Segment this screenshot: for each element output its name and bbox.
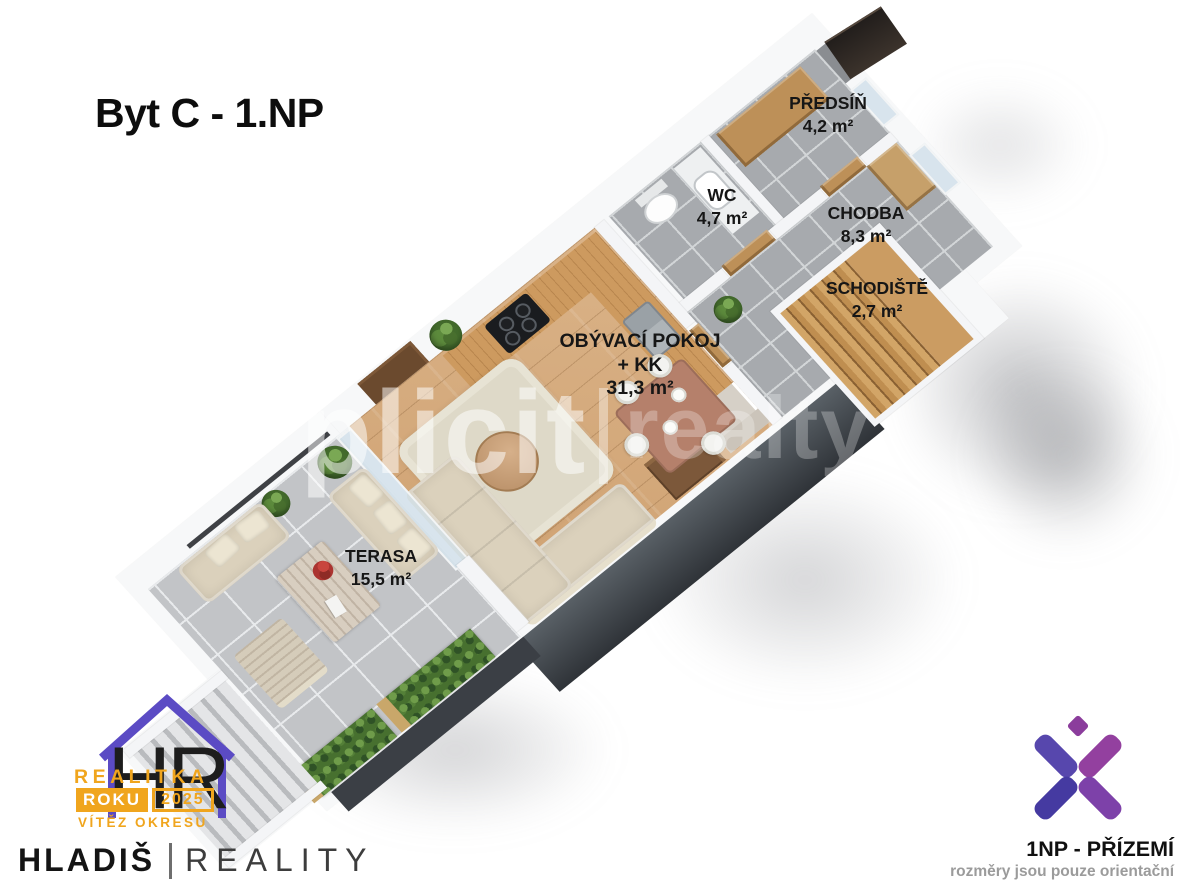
label-chodba: CHODBA 8,3 m² [828,202,905,248]
label-schodiste: SCHODIŠTĚ 2,7 m² [826,277,928,323]
agency-name-secondary: REALITY [185,842,374,879]
floor-disclaimer: rozměry jsou pouze orientační [950,863,1174,881]
room-name: SCHODIŠTĚ [826,277,928,300]
label-wc: WC 4,7 m² [697,184,748,230]
award-year: 2025 [152,788,214,812]
room-area: 2,7 m² [826,300,928,323]
agency-name-divider [169,843,172,879]
award-word: ROKU [76,788,148,812]
xlogo-icon [1020,712,1136,836]
room-area: 4,7 m² [697,207,748,230]
book [325,595,347,618]
label-terasa: TERASA 15,5 m² [345,545,417,591]
room-name-line2: + KK [559,354,720,378]
xlogo-bar-se [1075,773,1124,822]
award-row: ROKU 2025 [76,788,214,812]
room-name: CHODBA [828,202,905,225]
label-predsin: PŘEDSÍŇ 4,2 m² [789,92,867,138]
room-name: TERASA [345,545,417,568]
label-obyvaci-pokoj: OBÝVACÍ POKOJ + KK 31,3 m² [559,330,720,401]
floor-label: 1NP - PŘÍZEMÍ [1026,837,1174,862]
room-name: WC [697,184,748,207]
room-area: 15,5 m² [345,568,417,591]
room-area: 4,2 m² [789,115,867,138]
room-name: OBÝVACÍ POKOJ [559,330,720,354]
xlogo-bar-sw [1031,773,1080,822]
agency-name-primary: HLADIŠ [18,842,155,879]
award-line3: VÍTĚZ OKRESU [78,815,208,830]
agency-name: HLADIŠ REALITY [18,842,374,879]
flower-bouquet [309,557,338,584]
room-area: 31,3 m² [559,377,720,401]
award-line1: REALITKA [74,766,209,789]
xlogo-bar-nw [1031,731,1080,780]
page-title: Byt C - 1.NP [95,90,324,137]
room-name: PŘEDSÍŇ [789,92,867,115]
floorplan-render: plicit realty Byt C - 1.NP PŘEDSÍŇ 4,2 m… [0,0,1190,892]
xlogo-bar-ne [1075,731,1124,780]
xlogo-diamond [1067,715,1090,738]
room-area: 8,3 m² [828,225,905,248]
